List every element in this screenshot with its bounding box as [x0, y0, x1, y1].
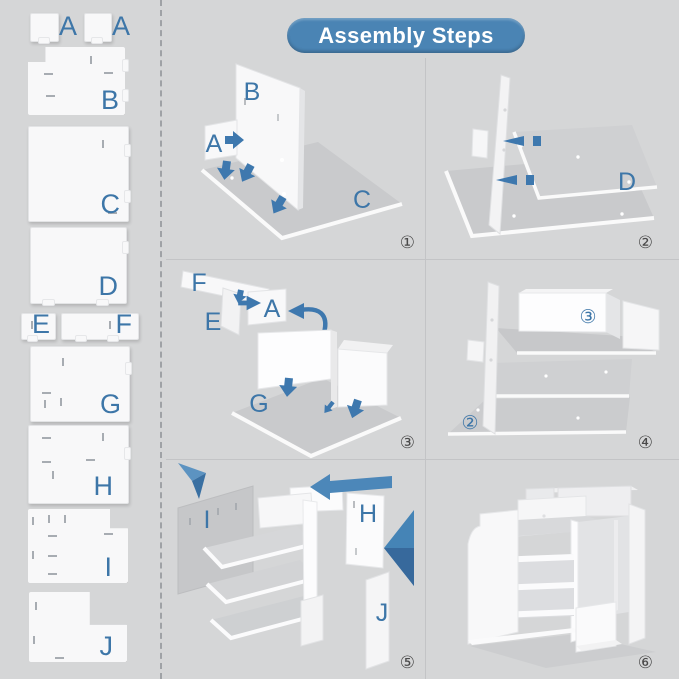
step5-label-i: I [204, 506, 211, 534]
step3-label-e: E [205, 308, 222, 336]
part-label-d: D [99, 273, 119, 300]
step-4-illustration: ③ ② [426, 260, 679, 459]
step-2-number: ② [638, 233, 653, 253]
step1-label-b: B [244, 78, 261, 106]
step5-label-j: J [376, 599, 389, 627]
step-3-illustration: F E A G [170, 260, 425, 459]
part-label-e: E [32, 311, 50, 338]
step-1-cell: B A C ① [170, 58, 425, 259]
step-1-illustration: B A C [170, 58, 425, 259]
part-label-b: B [101, 87, 119, 114]
part-b-shape: B [28, 47, 125, 115]
part-label-f: F [116, 311, 133, 338]
part-f-shape: F [61, 313, 137, 338]
step2-label-d: D [618, 168, 636, 196]
step-5-number: ⑤ [400, 653, 415, 673]
step-2-cell: D ② [426, 58, 679, 259]
step-6-number: ⑥ [638, 653, 653, 673]
part-label-h: H [94, 473, 114, 500]
step-3-cell: F E A G ③ [170, 260, 425, 459]
part-d-shape: D [30, 227, 125, 302]
step-4-number: ④ [638, 433, 653, 453]
part-g-shape: G [30, 346, 128, 420]
part-label-a2: A [112, 13, 130, 40]
step-6-cell: ⑥ [426, 460, 679, 679]
part-label-i: I [104, 554, 112, 581]
dashed-divider [160, 0, 162, 679]
part-a1-shape [30, 13, 57, 40]
step-5-illustration: I H J [170, 460, 425, 679]
part-label-j: J [100, 633, 114, 660]
step-3-number: ③ [400, 433, 415, 453]
part-label-g: G [100, 391, 121, 418]
step-6-illustration [426, 460, 679, 679]
step4-label-unit2: ② [461, 412, 478, 434]
step-5-cell: I H J ⑤ [170, 460, 425, 679]
step1-label-c: C [353, 186, 371, 214]
part-j-shape: J [29, 592, 127, 662]
step-4-cell: ③ ② ④ [426, 260, 679, 459]
part-label-a1: A [59, 13, 77, 40]
part-c-shape: C [28, 126, 127, 220]
step3-label-a: A [264, 295, 281, 323]
part-label-c: C [101, 191, 121, 218]
part-e-shape: E [21, 313, 54, 338]
step-1-number: ① [400, 233, 415, 253]
step4-label-unit3: ③ [579, 306, 596, 328]
part-h-shape: H [28, 425, 127, 502]
step-2-illustration: D [426, 58, 679, 259]
assembly-steps-banner: Assembly Steps [287, 18, 525, 53]
step3-label-g: G [249, 390, 268, 418]
step3-label-f: F [191, 269, 206, 297]
step1-label-a: A [206, 130, 223, 158]
part-i-shape: I [28, 509, 128, 583]
assembly-instructions-page: A A B C D [0, 0, 679, 679]
step5-label-h: H [359, 500, 377, 528]
part-a2-shape [84, 13, 110, 40]
page-title: Assembly Steps [318, 23, 494, 49]
